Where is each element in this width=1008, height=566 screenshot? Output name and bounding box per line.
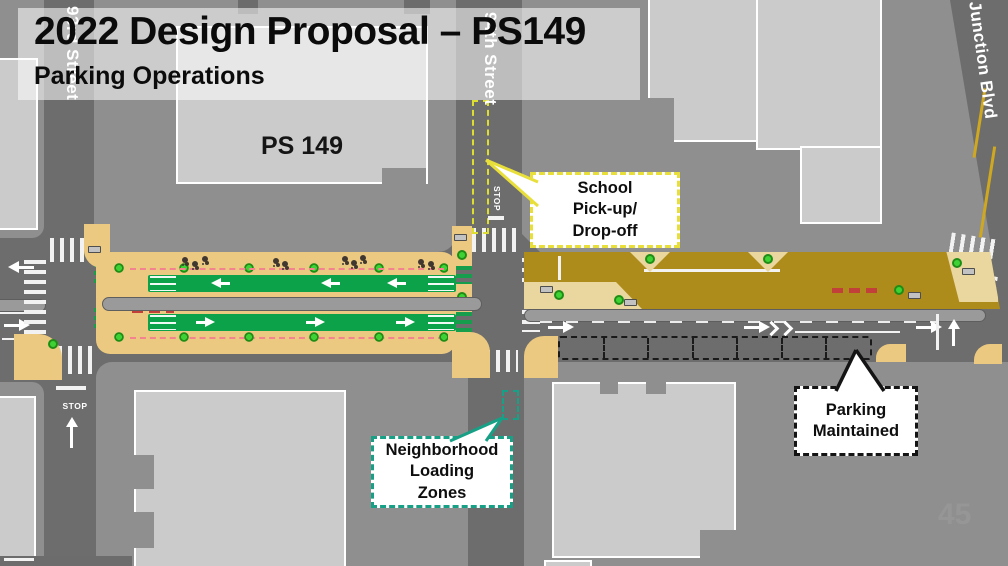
stop-bar-94th xyxy=(488,216,504,220)
curb-extension-94th-se xyxy=(524,336,558,378)
pedestrian-icon xyxy=(418,259,424,265)
parking-stall xyxy=(827,338,870,358)
lane-arrow-east xyxy=(916,326,938,329)
callout-line: Zones xyxy=(374,483,510,504)
bike-arrow-east xyxy=(396,321,410,324)
pedestrian-icon xyxy=(351,260,357,266)
lane-line xyxy=(0,312,24,314)
building-top-right-b-lower xyxy=(800,146,882,224)
planter-icon xyxy=(614,295,624,305)
building-notch xyxy=(600,380,618,394)
callout-line: Maintained xyxy=(797,421,915,442)
planter-icon xyxy=(952,258,962,268)
callout-loading-zones: Neighborhood Loading Zones xyxy=(371,436,513,508)
ps149-label: PS 149 xyxy=(196,132,408,161)
bottom-street-line xyxy=(4,558,34,561)
crosswalk-93rd-south xyxy=(58,346,96,374)
building-bottom-mid xyxy=(134,390,346,566)
page-number: 45 xyxy=(938,498,971,532)
pedestrian-icon xyxy=(192,261,198,267)
bike-arrow-west xyxy=(392,282,406,285)
bench-icon xyxy=(88,246,101,253)
building-top-right-b xyxy=(756,0,882,150)
stop-bar-93rd xyxy=(56,386,86,390)
school-zone-marking xyxy=(472,100,489,234)
bench-icon xyxy=(540,286,553,293)
pedestrian-icon xyxy=(360,255,366,261)
building-bottom-left xyxy=(0,396,36,566)
stop-marking-93rd: STOP xyxy=(62,401,88,411)
lane-arrow-eastbound xyxy=(4,324,26,327)
pedestrian-icon xyxy=(342,256,348,262)
bench-icon xyxy=(624,299,637,306)
lane-entry-lines xyxy=(150,315,176,330)
bench-icon xyxy=(962,268,975,275)
bench-icon xyxy=(908,292,921,299)
pink-edge-line xyxy=(130,268,444,270)
planter-icon xyxy=(894,285,904,295)
slide-title: 2022 Design Proposal – PS149 xyxy=(34,10,586,54)
planter-icon xyxy=(554,290,564,300)
building-notch xyxy=(700,530,738,560)
chevron-marking xyxy=(778,321,794,337)
planter-dot-row xyxy=(114,332,448,342)
lane-arrow-east xyxy=(744,326,766,329)
parking-stall xyxy=(694,338,739,358)
callout-line: Neighborhood xyxy=(374,440,510,461)
pedestrian-icon xyxy=(202,256,208,262)
loading-zone-marking xyxy=(502,390,519,420)
school-building-notch xyxy=(382,168,426,184)
red-crosswalk-dashes xyxy=(832,288,880,293)
callout-line: Pick-up/ xyxy=(533,199,677,220)
pedestrian-icon xyxy=(182,257,188,263)
median-plaza xyxy=(102,297,482,311)
planter-icon xyxy=(645,254,655,264)
parking-stall xyxy=(649,338,694,358)
callout-school-pickup: School Pick-up/ Drop-off xyxy=(530,172,680,248)
building-notch xyxy=(132,455,154,489)
turn-arrow xyxy=(952,322,955,346)
bike-arrow-east xyxy=(196,321,210,324)
pedestrian-icon xyxy=(273,258,279,264)
building-notch xyxy=(648,98,674,142)
lane-arrow-north xyxy=(70,420,73,448)
bench-icon xyxy=(454,234,467,241)
crosswalk-34th-west xyxy=(24,260,46,340)
bike-arrow-east xyxy=(306,321,320,324)
lane-dash-line xyxy=(540,321,936,323)
callout-line: Parking xyxy=(797,400,915,421)
planter-icon xyxy=(48,339,58,349)
pedestrian-icon xyxy=(282,261,288,267)
stop-line-junction xyxy=(936,314,939,350)
lane-arrow-east xyxy=(548,326,570,329)
stop-line xyxy=(558,256,561,280)
callout-line: Loading xyxy=(374,461,510,482)
lane-entry-lines xyxy=(428,315,454,330)
parking-stall xyxy=(738,338,783,358)
bike-lane-eastbound xyxy=(148,314,456,331)
bike-arrow-west xyxy=(326,282,340,285)
bike-lane-westbound xyxy=(148,275,456,292)
building-notch xyxy=(646,380,666,394)
callout-line: School xyxy=(533,178,677,199)
curb-extension-parking-end xyxy=(876,344,906,362)
parking-stall xyxy=(605,338,650,358)
title-banner: 2022 Design Proposal – PS149 Parking Ope… xyxy=(18,8,640,100)
bike-arrow-west xyxy=(216,282,230,285)
crosswalk-94th-south xyxy=(486,350,518,372)
lane-entry-lines xyxy=(428,276,454,291)
parking-stall xyxy=(560,338,605,358)
center-line xyxy=(644,269,780,272)
pedestrian-icon xyxy=(428,261,434,267)
shared-street xyxy=(524,252,1000,309)
curb-extension-94th-sw xyxy=(452,332,490,378)
street-label-junction: Junction Blvd xyxy=(964,0,1000,121)
lane-line xyxy=(795,331,900,333)
callout-line: Drop-off xyxy=(533,221,677,242)
slide-canvas: PS 149 45 xyxy=(0,0,1008,566)
parking-stalls xyxy=(558,336,872,360)
callout-parking-maintained: Parking Maintained xyxy=(794,386,918,456)
lane-entry-lines xyxy=(150,276,176,291)
slide-subtitle: Parking Operations xyxy=(34,62,265,91)
planter-icon xyxy=(457,250,467,260)
planter-icon xyxy=(763,254,773,264)
building-sliver xyxy=(544,560,592,566)
parking-stall xyxy=(783,338,828,358)
building-notch xyxy=(132,512,154,548)
stop-marking-94th: STOP xyxy=(492,186,502,211)
curb-extension-junction-s xyxy=(974,344,1002,364)
